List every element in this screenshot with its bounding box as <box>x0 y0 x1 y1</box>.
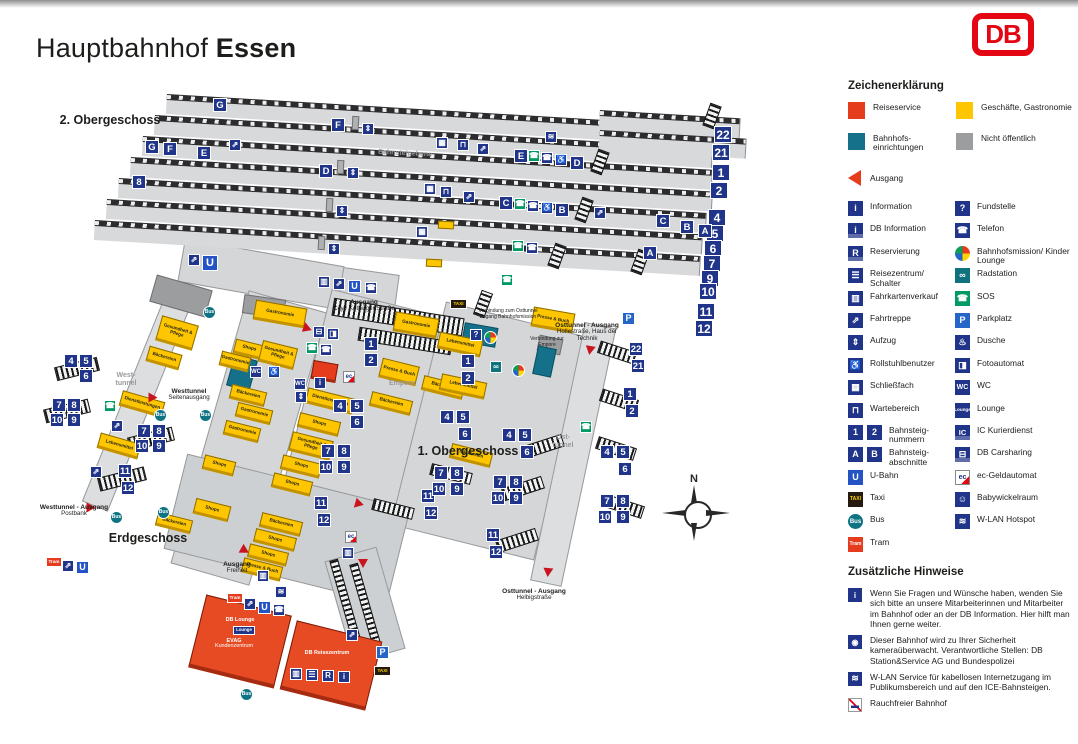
u-bahn-icon: U <box>258 601 271 614</box>
platform-number-plate: 1 <box>623 387 637 401</box>
legend-icon-2: 2 <box>867 425 882 440</box>
reisezentrum-icon: ☰ <box>306 669 318 681</box>
note-icon: i <box>848 588 862 602</box>
platform-number-plate: 9 <box>337 460 351 474</box>
fundstelle-icon: ? Fundstelle <box>955 201 1074 223</box>
platform-number-plate: 2 <box>364 353 378 367</box>
map-label: Erdgeschoss <box>98 531 198 545</box>
platform-number-plate: 7 <box>52 398 66 412</box>
dusche-icon: ♨ Dusche <box>955 335 1074 357</box>
platform-number-plate: A <box>698 224 712 238</box>
notes-list: i Wenn Sie Fragen und Wünsche haben, wen… <box>848 588 1074 712</box>
fahrkartenverkauf-icon: ▥ Fahrkartenverkauf <box>848 291 955 313</box>
fotoautomat-icon: ◨ Fotoautomat <box>955 358 1074 380</box>
platform-number-plate: 21 <box>712 144 730 161</box>
db-carsharing-icon: ⊟ DB Carsharing <box>955 447 1074 469</box>
rollstuhl-icon: ♿ <box>555 154 567 166</box>
tram-icon: Tram Tram <box>848 537 955 559</box>
bahnhofsmission-icon: Bahnhofsmission/ Kinder Lounge <box>955 246 1074 268</box>
platform-number-plate: 4 <box>64 354 78 368</box>
telefon-icon: ☎ <box>526 242 538 254</box>
platform-number-plate: 4 <box>333 399 347 413</box>
legend-ausgang-row: Ausgang <box>848 169 1074 187</box>
platform-number-plate: 12 <box>424 506 438 520</box>
ausgang-arrow <box>300 321 311 332</box>
radstation-icon: ∞ <box>490 361 502 373</box>
ec-geldautomat-icon: ec ec-Geldautomat <box>955 470 1074 492</box>
legend-icon: TAXI <box>848 492 863 507</box>
aufzug-icon: ⇕ <box>347 167 359 179</box>
bahnhofseinrichtungen-swatch: Bahnhofs- einrichtungen <box>848 133 956 159</box>
legend-icon: ≋ <box>955 514 970 529</box>
platform-number-plate: 12 <box>317 513 331 527</box>
top-fade-bar <box>0 0 1078 8</box>
fahrtreppe-icon: ⇗ <box>477 143 489 155</box>
platform-number-plate: 8 <box>616 494 630 508</box>
ausgang-arrow <box>543 568 554 578</box>
ausgang-arrow <box>358 559 368 568</box>
radstation-icon: ∞ Radstation <box>955 268 1074 290</box>
legend-icon: Tram <box>848 537 863 552</box>
legend-icon: i <box>848 223 863 238</box>
platform-number-plate: 4 <box>440 410 454 424</box>
bus-icon: Bus <box>157 506 170 519</box>
platform-number-plate: 12 <box>489 545 503 559</box>
legend-icon: ∞ <box>955 268 970 283</box>
legend-area-swatches: Reiseservice Geschäfte, Gastronomie Bahn… <box>848 102 1074 159</box>
kiosk-block <box>438 221 454 230</box>
platform-number-plate: 6 <box>458 427 472 441</box>
platform-number-plate: 11 <box>486 528 500 542</box>
sos-icon: ☎ <box>501 274 513 286</box>
wc-icon: WC <box>250 366 262 378</box>
reisezentrum-icon: ☰ Reisezentrum/ Schalter <box>848 268 955 290</box>
platform-number-plate: 9 <box>152 439 166 453</box>
platform-number-plate: 9 <box>67 413 81 427</box>
legend-icon: ⇗ <box>848 313 863 328</box>
taxi-icon: TAXI <box>374 666 391 676</box>
wlan-icon: ≋ W-LAN Service für kabellosen Internetz… <box>848 672 1074 693</box>
sos-icon: ☎ <box>306 342 318 354</box>
parkplatz-icon: P <box>376 646 389 659</box>
legend-icon: U <box>848 470 863 485</box>
fahrtreppe-icon: ⇗ <box>62 560 74 572</box>
platform-number-plate: 1 <box>461 354 475 368</box>
fahrtreppe-icon: ⇗ <box>111 420 123 432</box>
platform-number-plate: 10 <box>135 439 149 453</box>
map-label: EVAG Kundenzentrum <box>202 638 266 650</box>
fahrtreppe-icon: ⇗ <box>333 278 345 290</box>
wlan-icon: ≋ <box>275 586 287 598</box>
ic-kurierdienst-icon: IC IC Kurierdienst <box>955 425 1074 447</box>
platform-number-plate: 5 <box>350 399 364 413</box>
aufzug-icon: ⇕ <box>336 205 348 217</box>
rollstuhl-icon: ♿ <box>268 366 280 378</box>
platform-number-plate: 5 <box>616 445 630 459</box>
bus-icon: Bus <box>154 409 167 422</box>
platform-number-plate: C <box>499 196 513 210</box>
aufzug-tower <box>318 236 326 250</box>
platform-number-plate: F <box>331 118 345 132</box>
tram-icon: Tram <box>46 557 62 567</box>
platform-number-plate: 8 <box>132 175 146 189</box>
map-label: Ausgang Freiheit <box>206 561 268 575</box>
db-information-icon: i Wenn Sie Fragen und Wünsche haben, wen… <box>848 588 1074 629</box>
bahnhofsmission-icon <box>512 364 525 377</box>
ausgang-arrow <box>149 393 158 403</box>
legend: Zeichenerklärung Reiseservice Geschäfte,… <box>848 80 1074 559</box>
fahrtreppe-icon: ⇗ <box>346 629 358 641</box>
platform-number-plate: 22 <box>629 342 643 356</box>
platform-number-plate: D <box>570 156 584 170</box>
platform-number-plate: 6 <box>618 462 632 476</box>
legend-title: Zeichenerklärung <box>848 80 1074 92</box>
platform-number-plate: 11 <box>697 303 715 320</box>
fundstelle-icon: ? <box>470 329 482 341</box>
platform-number-plate: 2 <box>710 182 728 199</box>
map-label: 1. Obergeschoss <box>408 444 528 458</box>
platform-number-plate: 21 <box>631 359 645 373</box>
platform-number-plate: 6 <box>350 415 364 429</box>
geschaefte-swatch: Geschäfte, Gastronomie <box>956 102 1074 128</box>
schliessfach-icon: ▦ <box>436 137 448 149</box>
platform-number-plate: 5 <box>456 410 470 424</box>
map-label: Osttunnel - Ausgang Helbigstraße <box>488 588 580 602</box>
map-label: West- tunnel <box>108 372 144 388</box>
information-icon: i <box>338 671 350 683</box>
color-swatch <box>956 133 973 150</box>
bahnhofsmission-icon <box>484 331 497 344</box>
fahrkartenverkauf-icon: ▥ <box>290 668 302 680</box>
platform-number-plate: 11 <box>314 496 328 510</box>
rollstuhl-icon: ♿ <box>541 202 553 214</box>
platform-number-plate: 22 <box>714 126 732 143</box>
aufzug-tower <box>326 198 334 212</box>
aufzug-icon: ⇕ <box>295 391 307 403</box>
legend-icon: ▦ <box>848 380 863 395</box>
platform-number-plate: 7 <box>137 424 151 438</box>
page-title: Hauptbahnhof Essen <box>36 33 296 64</box>
schliessfach-icon: ▦ Schließfach <box>848 380 955 402</box>
platform-number-plate: 4 <box>502 428 516 442</box>
legend-icon: ☎ <box>955 223 970 238</box>
platform-number-plate: 10 <box>699 283 717 300</box>
platform-number-plate: 7 <box>434 466 448 480</box>
platform-number-plate: 9 <box>616 510 630 524</box>
platform-number-plate: 12 <box>695 320 713 337</box>
reservierung-icon: R <box>322 670 334 682</box>
babywickelraum-icon: ☺ Babywickelraum <box>955 492 1074 514</box>
tram-icon: Tram <box>227 593 243 603</box>
bahnsteignummern-icon: 1 2 Bahnsteig- nummern <box>848 425 955 447</box>
legend-icon: Lounge <box>955 403 970 418</box>
legend-icon: ☎ <box>955 291 970 306</box>
platform-number-plate: 1 <box>712 164 730 181</box>
map-label: Verbindung zur Empore <box>524 337 570 348</box>
platform-number-plate: 9 <box>509 491 523 505</box>
kiosk-block <box>426 259 442 268</box>
legend-icon: P <box>955 313 970 328</box>
platform-number-plate: F <box>163 142 177 156</box>
wc-icon: WC WC <box>955 380 1074 402</box>
fahrtreppe-icon: ⇗ <box>90 466 102 478</box>
reservierung-icon: R Reservierung <box>848 246 955 268</box>
ec-geldautomat-icon: ec <box>345 531 357 543</box>
platform-number-plate: 8 <box>67 398 81 412</box>
platform-number-plate: E <box>514 149 528 163</box>
nicht-oeffentlich-swatch: Nicht öffentlich <box>956 133 1074 159</box>
wc-icon: WC <box>294 378 306 390</box>
legend-icon-2: B <box>867 447 882 462</box>
legend-icon: ? <box>955 201 970 216</box>
legend-icon: ▥ <box>848 291 863 306</box>
schliessfach-icon: ▦ <box>416 226 428 238</box>
sos-icon: ☎ <box>580 421 592 433</box>
taxi-icon: TAXI Taxi <box>848 492 955 514</box>
color-swatch <box>848 133 865 150</box>
telefon-icon: ☎ <box>273 604 285 616</box>
ausgang-triangle-icon <box>848 170 861 186</box>
taxi-icon: TAXI <box>450 299 467 309</box>
map-label: Verbindung zum Osttunnel Zugang Bahnhofs… <box>462 309 554 320</box>
lounge-badge: Lounge <box>233 626 255 635</box>
schliessfach-icon: ▦ <box>424 183 436 195</box>
map-label: Empore <box>382 380 422 388</box>
platform-number-plate: 10 <box>319 460 333 474</box>
platform-number-plate: 4 <box>600 445 614 459</box>
legend-icon: 1 <box>848 425 863 440</box>
fahrtreppe-icon: ⇗ <box>188 254 200 266</box>
rauchfrei-icon: ▬ Rauchfreier Bahnhof <box>848 698 1074 712</box>
fahrtreppe-icon: ⇗ Fahrtreppe <box>848 313 955 335</box>
rollstuhlbenutzer-icon: ♿ Rollstuhlbenutzer <box>848 358 955 380</box>
platform-number-plate: G <box>145 140 159 154</box>
kamera-icon: ◉ Dieser Bahnhof wird zu Ihrer Sicherhei… <box>848 635 1074 666</box>
db-information-icon: i DB Information <box>848 223 955 245</box>
u-bahn-icon: U U-Bahn <box>848 470 955 492</box>
sos-icon: ☎ <box>514 198 526 210</box>
platform-number-plate: 7 <box>493 475 507 489</box>
ausgang-label: Ausgang <box>870 173 903 183</box>
ausgang-arrow <box>584 345 595 356</box>
bus-icon: Bus <box>199 409 212 422</box>
u-bahn-icon: U <box>76 561 89 574</box>
u-bahn-icon: U <box>202 255 218 271</box>
fotoautomat-icon: ◨ <box>327 328 339 340</box>
platform-number-plate: 10 <box>598 510 612 524</box>
reiseservice-swatch: Reiseservice <box>848 102 956 128</box>
aufzug-icon: ⇕ Aufzug <box>848 335 955 357</box>
sos-icon: ☎ <box>104 400 116 412</box>
notes-title: Zusätzliche Hinweise <box>848 566 1074 578</box>
legend-icon: ⊟ <box>955 447 970 462</box>
legend-icon: Bus <box>848 514 863 529</box>
legend-icon: WC <box>955 380 970 395</box>
wartebereich-icon: ⊓ <box>440 186 452 198</box>
platform-number-plate: 9 <box>450 482 464 496</box>
sos-icon: ☎ SOS <box>955 291 1074 313</box>
platform-number-plate: 10 <box>432 482 446 496</box>
platform-number-plate: 2 <box>625 404 639 418</box>
title-light: Hauptbahnhof <box>36 33 208 63</box>
telefon-icon: ☎ <box>527 200 539 212</box>
lounge-icon: Lounge Lounge <box>955 403 1074 425</box>
wlan-icon: ≋ <box>545 131 557 143</box>
sos-icon: ☎ <box>528 150 540 162</box>
information-icon: i Information <box>848 201 955 223</box>
platform-number-plate: 6 <box>79 369 93 383</box>
telefon-icon: ☎ <box>541 152 553 164</box>
legend-icon: ☰ <box>848 268 863 283</box>
wlan-hotspot-icon: ≋ W-LAN Hotspot <box>955 514 1074 536</box>
telefon-icon: ☎ Telefon <box>955 223 1074 245</box>
telefon-icon: ☎ <box>365 282 377 294</box>
platform-number-plate: B <box>555 203 569 217</box>
fahrtreppe-icon: ⇗ <box>244 598 256 610</box>
platform-number-plate: 7 <box>600 494 614 508</box>
platform-number-plate: 10 <box>50 413 64 427</box>
platform-number-plate: 10 <box>491 491 505 505</box>
wartebereich-icon: ⊓ <box>457 139 469 151</box>
platform-number-plate: 8 <box>337 444 351 458</box>
platform-number-plate: G <box>213 98 227 112</box>
note-icon: ◉ <box>848 635 862 649</box>
platform-number-plate: 1 <box>364 337 378 351</box>
additional-notes: Zusätzliche Hinweise i Wenn Sie Fragen u… <box>848 566 1074 718</box>
wartebereich-icon: ⊓ Wartebereich <box>848 403 955 425</box>
ec-geldautomat-icon: ec <box>343 371 355 383</box>
platform-number-plate: 2 <box>461 371 475 385</box>
aufzug-tower <box>337 160 345 174</box>
note-icon: ▬ <box>848 698 862 712</box>
color-swatch <box>956 102 973 119</box>
map-label: Ost- tunnel <box>545 434 581 450</box>
platform-number-plate: 7 <box>321 444 335 458</box>
platform-number-plate: E <box>197 146 211 160</box>
station-map-page: Hauptbahnhof Essen DB <box>0 0 1078 744</box>
note-icon: ≋ <box>848 672 862 686</box>
platform-number-plate: 8 <box>450 466 464 480</box>
compass-north-label: N <box>690 473 698 485</box>
map-label: Westtunnel Seitenausgang <box>158 388 220 402</box>
platform-number-plate: 11 <box>118 464 132 478</box>
map-label: Ausgang City / Kettwiger Straße <box>308 299 420 313</box>
legend-icon: R <box>848 246 863 261</box>
db-carsharing-icon: ⊟ <box>313 326 325 338</box>
legend-column-left: i Information i DB Information R Reservi… <box>848 201 955 559</box>
platform-number-plate: B <box>680 220 694 234</box>
legend-icon: ⇕ <box>848 335 863 350</box>
map-label: Westtunnel - Ausgang Postbank <box>28 504 120 518</box>
platform-number-plate: 5 <box>79 354 93 368</box>
legend-icon: ec <box>955 470 970 485</box>
legend-icon: ◨ <box>955 358 970 373</box>
telefon-icon: ☎ <box>320 344 332 356</box>
map-label: DB Reisezentrum <box>292 650 362 656</box>
legend-icon: ♿ <box>848 358 863 373</box>
bus-icon: Bus <box>240 688 253 701</box>
u-bahn-icon: U <box>348 280 361 293</box>
color-swatch <box>848 102 865 119</box>
legend-icon: ♨ <box>955 335 970 350</box>
fahrkartenverkauf-icon: ▥ <box>342 547 354 559</box>
fahrkartenverkauf-icon: ▥ <box>318 276 330 288</box>
platform-number-plate: D <box>319 164 333 178</box>
bus-icon: Bus <box>203 306 216 319</box>
fahrtreppe-icon: ⇗ <box>463 191 475 203</box>
platform-number-plate: C <box>656 214 670 228</box>
legend-icon: ⊓ <box>848 403 863 418</box>
db-logo: DB <box>972 13 1034 56</box>
fahrtreppe-icon: ⇗ <box>229 139 241 151</box>
platform-number-plate: 5 <box>518 428 532 442</box>
map-label: DB Lounge <box>210 617 270 623</box>
aufzug-tower <box>352 116 360 130</box>
legend-icon: ☺ <box>955 492 970 507</box>
platform-number-plate: 8 <box>509 475 523 489</box>
aufzug-icon: ⇕ <box>328 243 340 255</box>
legend-icon: A <box>848 447 863 462</box>
legend-icon <box>955 246 970 261</box>
bahnsteigabschnitte-icon: A B Bahnsteig- abschnitte <box>848 447 955 469</box>
legend-column-right: ? Fundstelle ☎ Telefon Bahnhofsmission/ … <box>955 201 1074 559</box>
platform-number-plate: A <box>643 246 657 260</box>
map-label: 2. Obergeschoss <box>55 113 165 127</box>
platform-number-plate: 8 <box>152 424 166 438</box>
bus-icon: Bus Bus <box>848 514 955 536</box>
legend-icon: IC <box>955 425 970 440</box>
compass-rose: N <box>660 473 734 547</box>
information-icon: i <box>314 377 326 389</box>
aufzug-icon: ⇕ <box>362 123 374 135</box>
title-bold: Essen <box>216 33 297 63</box>
sos-icon: ☎ <box>512 240 524 252</box>
legend-icon: i <box>848 201 863 216</box>
platform-number-plate: 12 <box>121 481 135 495</box>
fahrtreppe-icon: ⇗ <box>594 207 606 219</box>
parkplatz-icon: P Parkplatz <box>955 313 1074 335</box>
